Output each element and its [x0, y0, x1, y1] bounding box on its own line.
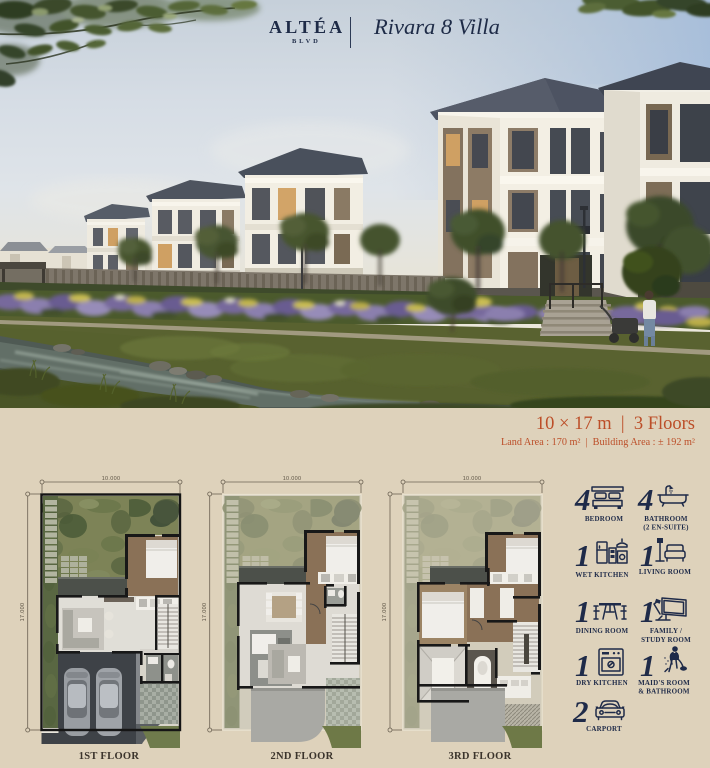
svg-text:MAID'S ROOM: MAID'S ROOM	[638, 679, 690, 687]
svg-text:4: 4	[637, 482, 654, 517]
svg-text:1: 1	[575, 538, 591, 573]
svg-text:2: 2	[572, 694, 589, 729]
svg-text:17.000: 17.000	[20, 603, 26, 622]
svg-text:WET KITCHEN: WET KITCHEN	[575, 571, 628, 579]
svg-text:1: 1	[640, 594, 656, 629]
svg-text:1: 1	[640, 648, 656, 683]
svg-text:BEDROOM: BEDROOM	[585, 515, 624, 523]
svg-text:17.000: 17.000	[202, 603, 208, 622]
svg-text:STUDY ROOM: STUDY ROOM	[641, 636, 691, 644]
svg-text:10.000: 10.000	[283, 476, 302, 482]
svg-text:LIVING ROOM: LIVING ROOM	[639, 568, 691, 576]
svg-text:FAMILY /: FAMILY /	[650, 627, 683, 635]
svg-text:4: 4	[574, 482, 591, 517]
svg-text:DINING ROOM: DINING ROOM	[576, 627, 629, 635]
svg-text:DRY KITCHEN: DRY KITCHEN	[576, 679, 628, 687]
svg-text:BATHROOM: BATHROOM	[644, 515, 688, 523]
svg-text:CARPORT: CARPORT	[586, 725, 622, 733]
svg-text:(2 EN-SUITE): (2 EN-SUITE)	[643, 524, 689, 532]
svg-text:10.000: 10.000	[102, 476, 121, 482]
svg-text:1: 1	[575, 648, 591, 683]
svg-text:& BATHROOM: & BATHROOM	[638, 688, 690, 696]
svg-text:1: 1	[575, 594, 591, 629]
svg-text:10.000: 10.000	[463, 476, 482, 482]
svg-text:17.000: 17.000	[382, 603, 388, 622]
